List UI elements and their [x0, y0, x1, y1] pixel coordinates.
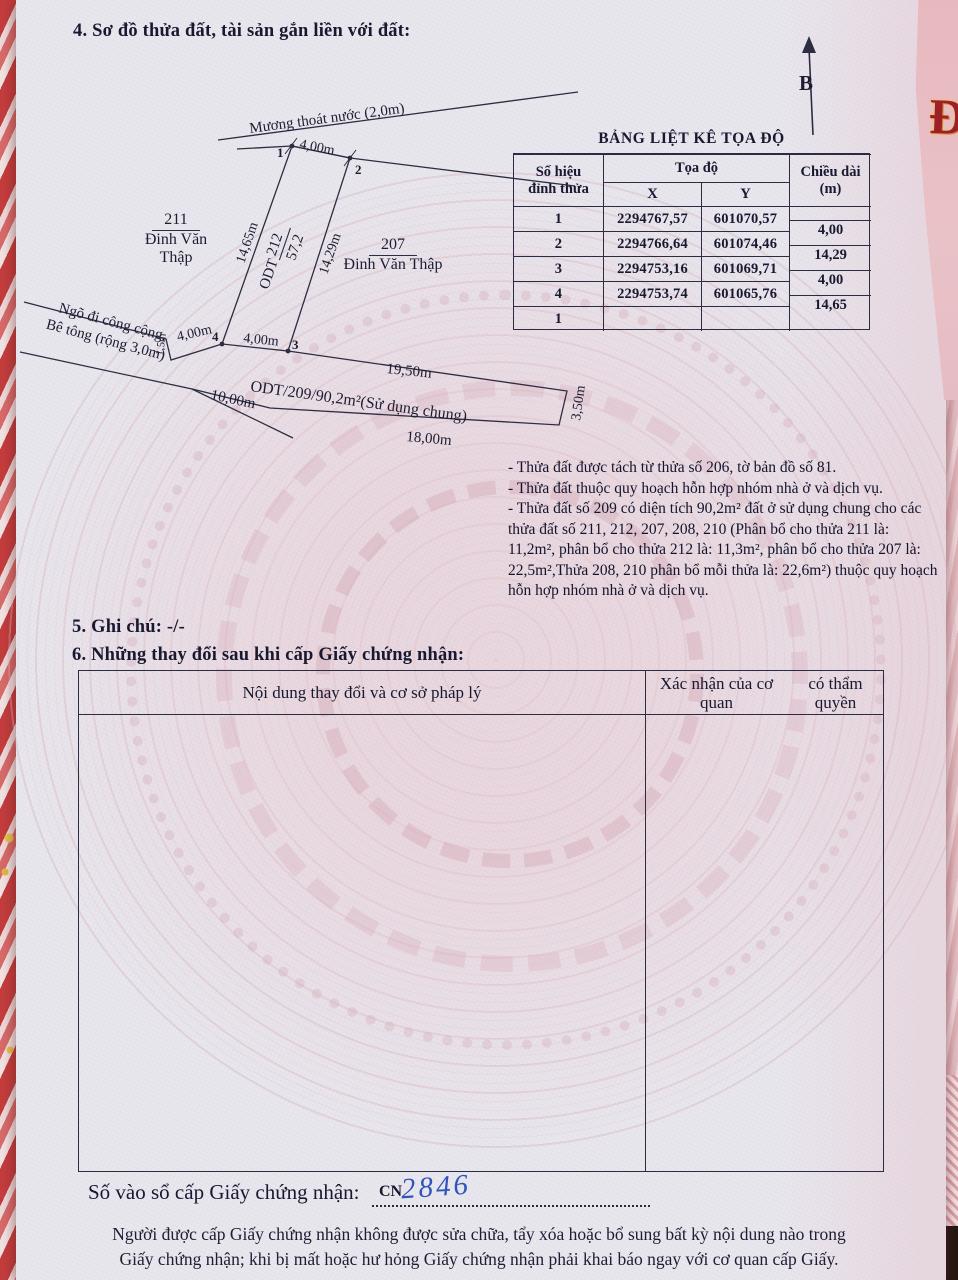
plot-notes: - Thửa đất được tách từ thửa số 206, tờ …: [508, 458, 938, 602]
row-id: 1: [514, 206, 603, 231]
row-x: 2294767,57: [603, 206, 701, 231]
warning-line: Giấy chứng nhận; khi bị mất hoặc hư hỏng…: [40, 1247, 918, 1272]
changes-col1-header: Nội dung thay đổi và cơ sở pháp lý: [79, 671, 645, 714]
header-length: Chiều dài (m): [789, 154, 871, 206]
length-value: 14,65: [790, 297, 871, 314]
row-y: [701, 306, 789, 331]
length-value: 14,29: [790, 247, 871, 264]
plot-number: 207: [369, 236, 417, 256]
row-x: 2294753,74: [603, 281, 701, 306]
row-id: 2: [514, 231, 603, 256]
length-column: 4,00 14,29 4,00 14,65: [789, 206, 871, 331]
neighbor-plot-207: 207 Đinh Văn Thập: [335, 236, 451, 274]
land-certificate-photo: { "sections": { "sec4_title": "4. Sơ đồ …: [0, 0, 958, 1280]
registry-prefix: CN: [379, 1183, 402, 1201]
plot-number: 211: [152, 211, 199, 231]
coordinate-table-title: BẢNG LIỆT KÊ TỌA ĐỘ: [513, 130, 870, 148]
red-cover-left-edge: [0, 0, 17, 1280]
neighbor-plot-211: 211 Đinh Văn Thập: [127, 211, 225, 267]
coordinate-table: Số hiệu đỉnh thửa Tọa độ Chiều dài (m) X…: [513, 153, 870, 330]
header-x: X: [603, 182, 701, 206]
registry-number-handwritten: 2846: [400, 1169, 472, 1207]
header-y: Y: [701, 182, 789, 206]
header-coordinates: Tọa độ: [603, 154, 789, 182]
changes-col2-header: Xác nhận của cơ quan có thẩm quyền: [645, 671, 883, 714]
row-x: 2294753,16: [603, 256, 701, 281]
row-x: [603, 306, 701, 331]
row-x: 2294766,64: [603, 231, 701, 256]
row-y: 601069,71: [701, 256, 789, 281]
changes-table: Nội dung thay đổi và cơ sở pháp lý Xác n…: [78, 670, 884, 1172]
note-line: - Thửa đất thuộc quy hoạch hỗn hợp nhóm …: [508, 479, 938, 500]
section5-title: 5. Ghi chú: -/-: [72, 617, 185, 638]
cover-edge-letters: ĐẤ: [928, 87, 958, 148]
section6-title: 6. Những thay đổi sau khi cấp Giấy chứng…: [72, 645, 464, 666]
row-y: 601074,46: [701, 231, 789, 256]
length-value: 4,00: [790, 222, 871, 239]
cover-lattice-pattern: [944, 1075, 958, 1227]
registry-number-label: Số vào sổ cấp Giấy chứng nhận:: [88, 1180, 360, 1205]
row-id: 1: [514, 306, 603, 331]
note-line: - Thửa đất được tách từ thửa số 206, tờ …: [508, 458, 938, 479]
row-y: 601065,76: [701, 281, 789, 306]
section4-title: 4. Sơ đồ thửa đất, tài sản gắn liền với …: [73, 21, 410, 42]
row-id: 4: [514, 281, 603, 306]
length-value: 4,00: [790, 272, 871, 289]
note-line: - Thửa đất số 209 có diện tích 90,2m² đấ…: [508, 499, 938, 602]
plot-owner: Đinh Văn Thập: [127, 231, 225, 267]
plot-owner: Đinh Văn Thập: [335, 256, 451, 274]
warning-line: Người được cấp Giấy chứng nhận không đượ…: [40, 1222, 918, 1247]
header-vertex-id: Số hiệu đỉnh thửa: [514, 154, 603, 206]
row-id: 3: [514, 256, 603, 281]
certificate-warning: Người được cấp Giấy chứng nhận không đượ…: [40, 1222, 918, 1272]
row-y: 601070,57: [701, 206, 789, 231]
